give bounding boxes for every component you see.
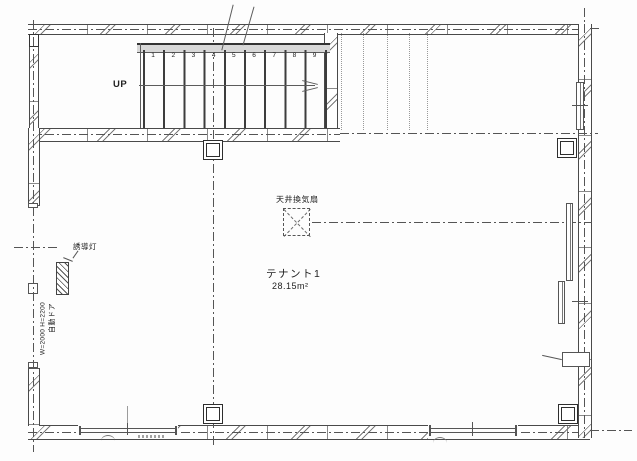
grid-line-left xyxy=(33,20,34,452)
door-center-mark xyxy=(127,406,128,423)
column xyxy=(557,138,577,158)
wall-left-mid xyxy=(28,128,40,206)
stair-treads xyxy=(143,50,327,128)
tenant-area-label: 28.15m² xyxy=(272,281,309,291)
wall-top xyxy=(28,24,590,35)
stair-projection-line xyxy=(387,33,388,130)
tenant-name-label: テナント1 xyxy=(266,266,321,281)
window-center-tick xyxy=(472,422,473,436)
step-number: 2 xyxy=(163,52,183,59)
grid-line-mid-horizontal xyxy=(312,222,592,223)
stair-projection-line xyxy=(363,33,364,130)
grid-line-left-short xyxy=(14,247,58,248)
grid-line-under-stair xyxy=(340,133,598,134)
step-number: 5 xyxy=(224,52,244,59)
swing-mark xyxy=(101,435,115,441)
grid-line-top-ext xyxy=(590,28,602,29)
wall-left-lower xyxy=(28,368,40,426)
grid-line-bottom-ext xyxy=(590,430,632,431)
stair-up-label: UP xyxy=(113,79,127,90)
door-end-tick xyxy=(175,426,177,435)
ceiling-fan-symbol xyxy=(283,208,310,236)
step-number: 1 xyxy=(143,52,163,59)
column xyxy=(558,404,578,424)
step-number: 4 xyxy=(204,52,224,59)
swing-mark xyxy=(433,437,447,443)
window-sash xyxy=(566,203,573,281)
window-end-tick xyxy=(515,425,517,436)
stair-projection-line xyxy=(341,33,342,130)
storefront-window-lines xyxy=(430,428,516,433)
stair-projection-line xyxy=(427,33,428,130)
entrance-door-lines xyxy=(80,428,176,433)
illegible-note xyxy=(138,435,164,438)
duct-box xyxy=(562,352,590,367)
ceiling-fan-label: 天井換気扇 xyxy=(276,194,319,205)
window-end-tick xyxy=(429,425,431,436)
door-end-tick xyxy=(79,426,81,435)
auto-door-label: 自動ドア xyxy=(47,301,57,335)
window-sash xyxy=(576,82,584,130)
sash-mid-tick xyxy=(572,105,588,106)
window-sash xyxy=(558,281,565,324)
stair-direction-line xyxy=(139,85,315,86)
step-number: 8 xyxy=(284,52,304,59)
wall-left-narrow xyxy=(29,46,39,128)
grid-line-right-ext xyxy=(584,8,585,24)
step-number: 9 xyxy=(305,52,325,59)
wall-interior-stair xyxy=(28,128,340,142)
window-break-tick xyxy=(572,301,588,302)
step-number: 7 xyxy=(264,52,284,59)
stair-step-numbers: 1 2 3 4 5 6 7 8 9 xyxy=(143,52,325,59)
guide-light-fixture xyxy=(56,262,69,295)
column xyxy=(203,140,223,160)
floor-plan: 1 2 3 4 5 6 7 8 9 UP 天井換気扇 xyxy=(0,0,637,461)
step-number: 3 xyxy=(183,52,203,59)
column xyxy=(203,404,223,424)
auto-door-size-label: W=2000 H=2200 xyxy=(40,297,47,361)
duct-leader-line xyxy=(542,355,562,360)
stair-projection-line xyxy=(409,33,410,130)
step-number: 6 xyxy=(244,52,264,59)
pilaster-top-left xyxy=(29,34,39,47)
door-center-tick xyxy=(127,423,128,435)
